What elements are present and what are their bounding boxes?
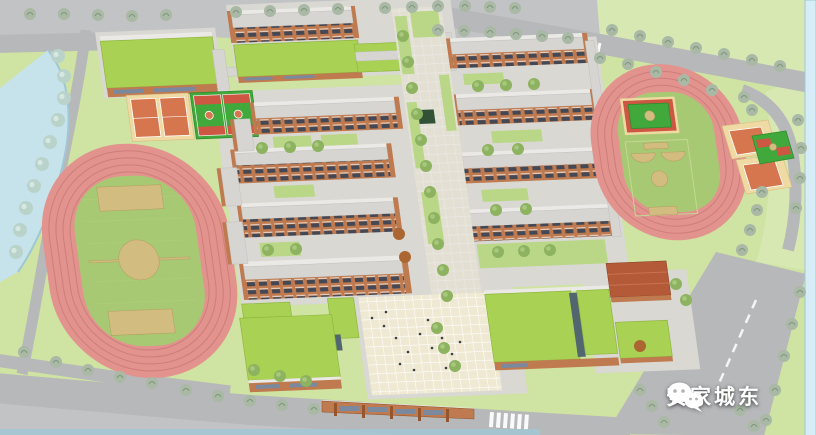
- penalty-area-north: [97, 185, 164, 212]
- wechat-icon: [666, 381, 704, 413]
- watermark: 安家城东: [666, 381, 762, 411]
- tennis-courts-north: [126, 93, 194, 141]
- terracotta-roof-building: [606, 261, 671, 297]
- entry-plaza: [358, 292, 502, 395]
- campus-aerial-rendering: 安家城东: [0, 0, 816, 435]
- waterway-south: [0, 429, 540, 435]
- campus-scene: [0, 0, 816, 435]
- penalty-area-south: [108, 309, 175, 336]
- waterway-east: [805, 0, 816, 435]
